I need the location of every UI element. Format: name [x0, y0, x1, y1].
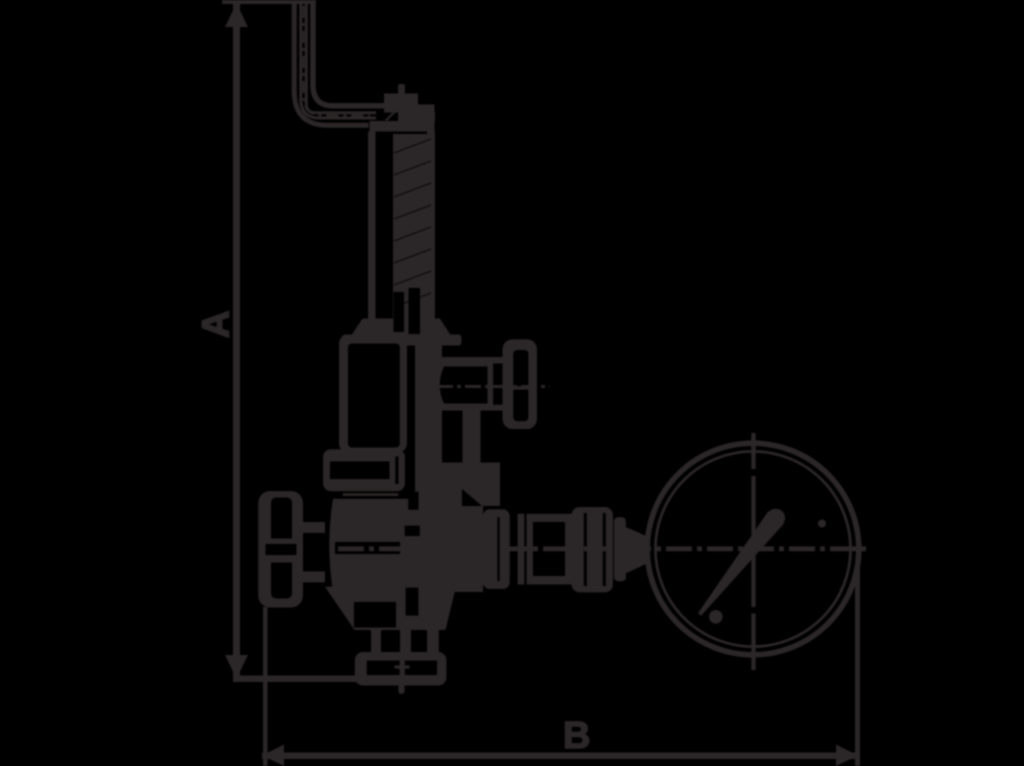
svg-text:A: A: [196, 311, 238, 338]
svg-text:B: B: [563, 715, 590, 757]
